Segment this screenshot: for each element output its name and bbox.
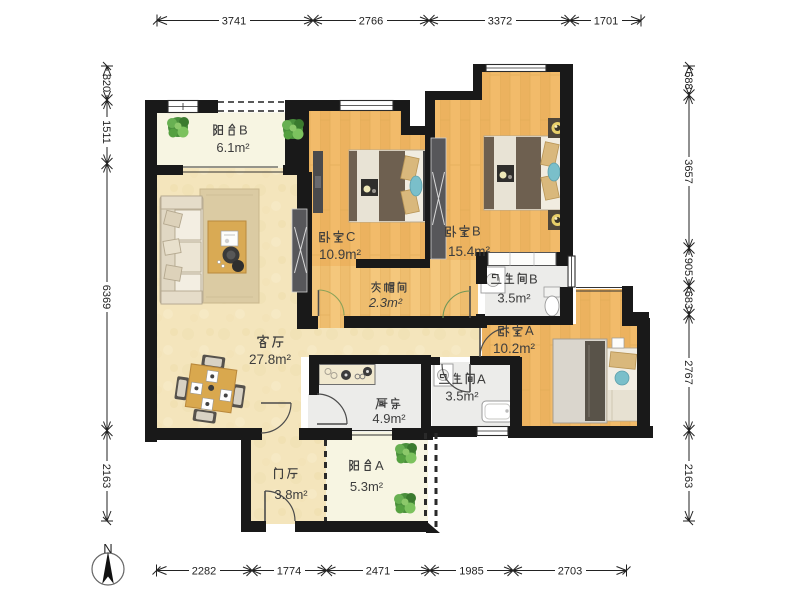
svg-text:688: 688	[682, 71, 694, 89]
svg-text:6369: 6369	[100, 285, 112, 309]
svg-text:2163: 2163	[100, 464, 112, 488]
svg-text:4.9m²: 4.9m²	[372, 411, 406, 426]
svg-text:5.3m²: 5.3m²	[350, 479, 384, 494]
svg-text:15.4m²: 15.4m²	[448, 244, 491, 259]
svg-text:820: 820	[100, 74, 112, 92]
svg-text:3372: 3372	[488, 16, 512, 28]
svg-text:B: B	[239, 123, 248, 138]
svg-text:A: A	[525, 323, 534, 338]
svg-text:27.8m²: 27.8m²	[249, 352, 292, 367]
svg-text:1701: 1701	[594, 16, 618, 28]
svg-text:2766: 2766	[359, 16, 383, 28]
svg-text:A: A	[477, 372, 486, 387]
svg-text:1774: 1774	[277, 566, 301, 578]
svg-text:2.3m²: 2.3m²	[368, 295, 403, 310]
svg-text:6.1m²: 6.1m²	[216, 140, 250, 155]
svg-text:683: 683	[682, 291, 694, 309]
svg-text:10.2m²: 10.2m²	[493, 341, 536, 356]
svg-text:3.5m²: 3.5m²	[445, 389, 479, 404]
svg-text:B: B	[529, 272, 538, 287]
svg-text:10.9m²: 10.9m²	[319, 247, 362, 262]
svg-text:2767: 2767	[682, 360, 694, 384]
svg-text:A: A	[375, 458, 384, 473]
svg-text:2703: 2703	[558, 566, 582, 578]
svg-text:3.5m²: 3.5m²	[497, 291, 531, 306]
svg-text:1985: 1985	[459, 566, 483, 578]
svg-text:2282: 2282	[192, 566, 216, 578]
svg-text:2471: 2471	[366, 566, 390, 578]
svg-text:B: B	[472, 224, 481, 239]
svg-text:1511: 1511	[100, 120, 112, 144]
svg-text:3657: 3657	[682, 159, 694, 183]
svg-text:3741: 3741	[222, 16, 246, 28]
svg-text:2163: 2163	[682, 464, 694, 488]
svg-text:C: C	[346, 229, 355, 244]
svg-text:3.8m²: 3.8m²	[274, 487, 308, 502]
svg-text:905: 905	[682, 258, 694, 276]
